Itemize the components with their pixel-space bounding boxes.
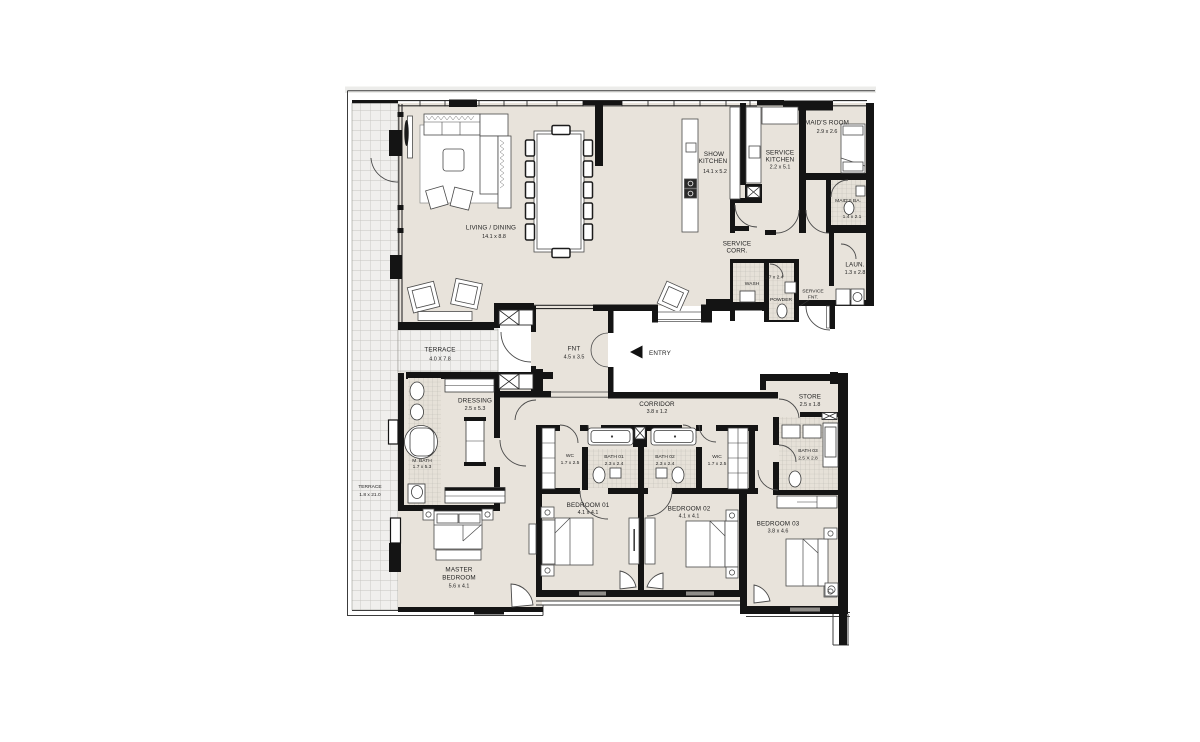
svg-text:2.5 x 1.8: 2.5 x 1.8 — [800, 402, 821, 408]
svg-text:2.5 x 5.3: 2.5 x 5.3 — [465, 406, 486, 412]
svg-text:SHOW: SHOW — [704, 151, 724, 158]
svg-text:LIVING / DINING: LIVING / DINING — [466, 225, 516, 232]
svg-text:MAID'S BA.: MAID'S BA. — [835, 198, 861, 204]
svg-text:5.6 x 4.1: 5.6 x 4.1 — [449, 584, 470, 590]
svg-text:CORRIDOR: CORRIDOR — [639, 401, 675, 408]
svg-text:CORR.: CORR. — [726, 248, 747, 255]
svg-text:POWDER: POWDER — [770, 297, 792, 303]
svg-text:LAUN.: LAUN. — [845, 262, 864, 269]
svg-text:SERVICE: SERVICE — [723, 241, 752, 248]
svg-text:WIC: WIC — [712, 454, 722, 460]
svg-text:BEDROOM 01: BEDROOM 01 — [567, 502, 610, 509]
svg-text:1.7 x 5.3: 1.7 x 5.3 — [413, 464, 432, 470]
svg-text:BATH 03: BATH 03 — [798, 448, 818, 454]
svg-text:4.0 X 7.8: 4.0 X 7.8 — [429, 357, 451, 363]
svg-text:M. BATH: M. BATH — [412, 458, 432, 464]
svg-text:DRESSING: DRESSING — [458, 398, 492, 405]
svg-text:MAID'S ROOM: MAID'S ROOM — [805, 120, 849, 127]
svg-text:BEDROOM 03: BEDROOM 03 — [757, 521, 800, 528]
svg-text:KITCHEN: KITCHEN — [766, 157, 795, 164]
svg-text:2.3 x 2.4: 2.3 x 2.4 — [656, 461, 675, 467]
svg-text:3.8 x 4.6: 3.8 x 4.6 — [768, 529, 789, 535]
svg-text:ENTRY: ENTRY — [649, 350, 672, 357]
svg-text:1.7 x 2.5: 1.7 x 2.5 — [561, 460, 580, 466]
svg-text:4.1 x 4.1: 4.1 x 4.1 — [578, 510, 599, 516]
svg-text:1.8 x 21.0: 1.8 x 21.0 — [359, 492, 381, 498]
svg-text:2.9 x 2.6: 2.9 x 2.6 — [817, 129, 838, 135]
svg-text:14.1 x 5.2: 14.1 x 5.2 — [703, 169, 727, 175]
svg-text:TERRACE: TERRACE — [424, 347, 455, 354]
svg-text:FNT.: FNT. — [808, 295, 818, 301]
svg-text:WC: WC — [566, 453, 575, 459]
svg-text:FNT: FNT — [568, 346, 581, 353]
svg-text:BEDROOM: BEDROOM — [442, 575, 476, 582]
svg-text:4.5 x 3.5: 4.5 x 3.5 — [564, 355, 585, 361]
svg-text:2.2 x 5.1: 2.2 x 5.1 — [770, 165, 791, 171]
svg-text:2.3 x 2.4: 2.3 x 2.4 — [605, 461, 624, 467]
svg-text:SERVICE: SERVICE — [802, 289, 824, 295]
svg-text:MASTER: MASTER — [445, 567, 472, 574]
svg-text:14.1 x 8.8: 14.1 x 8.8 — [482, 234, 506, 240]
svg-text:WASH: WASH — [745, 281, 760, 287]
svg-text:KITCHEN: KITCHEN — [699, 158, 728, 165]
svg-text:3.8 x 1.2: 3.8 x 1.2 — [647, 409, 668, 415]
svg-text:1.7 x 2.5: 1.7 x 2.5 — [708, 461, 727, 467]
svg-text:SERVICE: SERVICE — [766, 150, 795, 157]
svg-text:BATH 02: BATH 02 — [655, 454, 675, 460]
svg-text:1.3 x 2.8: 1.3 x 2.8 — [845, 270, 866, 276]
svg-text:2.5 X 2.8: 2.5 X 2.8 — [798, 456, 818, 462]
svg-text:STORE: STORE — [799, 394, 821, 401]
svg-text:TERRACE: TERRACE — [358, 484, 382, 490]
svg-text:1.4 x 2.1: 1.4 x 2.1 — [843, 214, 862, 220]
svg-text:4.1 x 4.1: 4.1 x 4.1 — [679, 514, 700, 520]
svg-text:1.7 x 2.4: 1.7 x 2.4 — [765, 275, 784, 281]
svg-text:BEDROOM 02: BEDROOM 02 — [668, 506, 711, 513]
svg-text:BATH 01: BATH 01 — [604, 454, 624, 460]
